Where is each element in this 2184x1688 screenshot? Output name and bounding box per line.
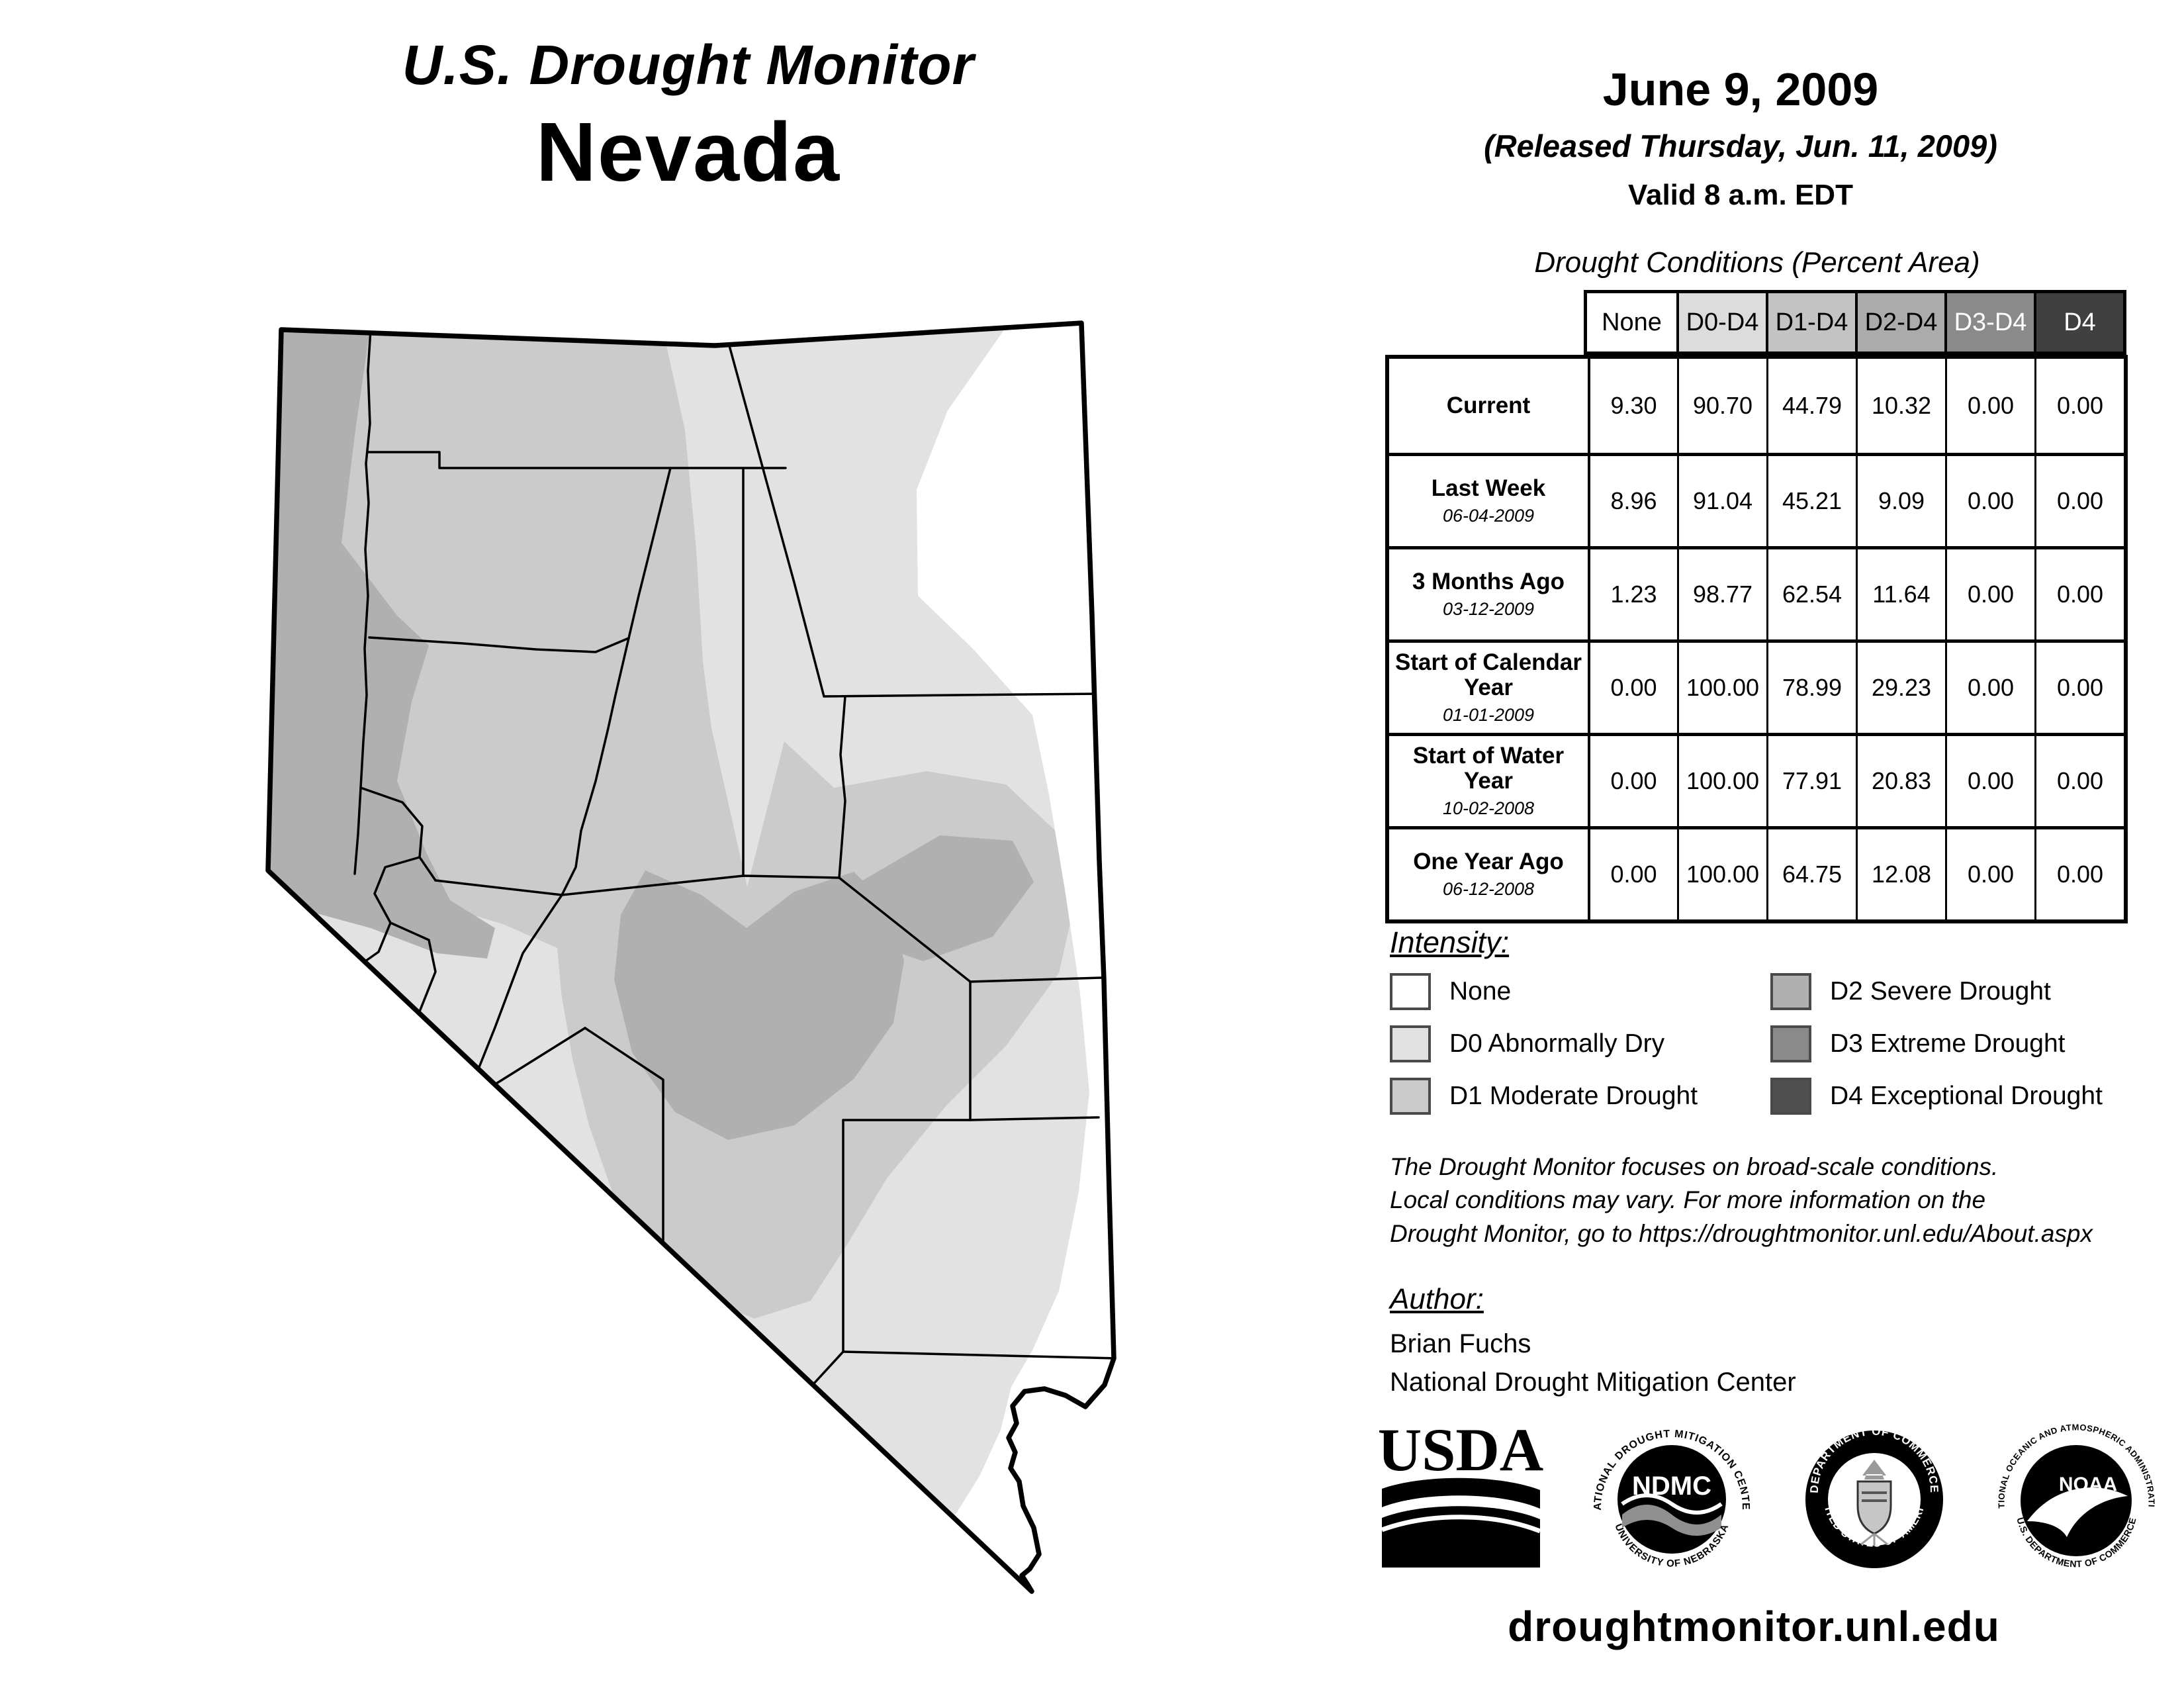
table-cell: 12.08 xyxy=(1856,829,1945,919)
row-label-start-calendar-year: Start of Calendar Year 01-01-2009 xyxy=(1389,643,1588,733)
legend-swatch-d0 xyxy=(1390,1025,1431,1062)
map-date: June 9, 2009 xyxy=(1310,63,2171,116)
table-cell: 91.04 xyxy=(1677,456,1766,546)
table-cell: 29.23 xyxy=(1856,643,1945,733)
author-organization: National Drought Mitigation Center xyxy=(1390,1368,1796,1397)
table-row: Current 9.30 90.70 44.79 10.32 0.00 0.00 xyxy=(1389,359,2124,453)
state-name: Nevada xyxy=(218,104,1158,200)
legend-item-d4: D4 Exceptional Drought xyxy=(1770,1076,2103,1116)
table-cell: 0.00 xyxy=(1588,643,1677,733)
table-cell: 44.79 xyxy=(1766,359,1856,453)
table-cell: 0.00 xyxy=(1945,359,2034,453)
legend-item-none: None xyxy=(1390,972,1770,1011)
table-cell: 100.00 xyxy=(1677,736,1766,826)
table-cell: 0.00 xyxy=(1588,829,1677,919)
table-row: Start of Calendar Year 01-01-2009 0.00 1… xyxy=(1389,639,2124,733)
table-cell: 0.00 xyxy=(2034,456,2124,546)
intensity-title: Intensity: xyxy=(1390,925,1509,960)
agency-logos: USDA NATIONAL DROUGHT MITIGATION CENTER … xyxy=(1377,1417,2158,1579)
usda-logo: USDA xyxy=(1377,1419,1545,1577)
legend-item-d0: D0 Abnormally Dry xyxy=(1390,1024,1770,1064)
table-cell: 62.54 xyxy=(1766,549,1856,639)
table-cell: 0.00 xyxy=(1945,456,2034,546)
legend-item-d2: D2 Severe Drought xyxy=(1770,972,2051,1011)
table-cell: 9.09 xyxy=(1856,456,1945,546)
row-label-start-water-year: Start of Water Year 10-02-2008 xyxy=(1389,736,1588,826)
table-cell: 0.00 xyxy=(1945,549,2034,639)
table-cell: 0.00 xyxy=(2034,829,2124,919)
table-row: Start of Water Year 10-02-2008 0.00 100.… xyxy=(1389,733,2124,826)
column-header-d1-d4: D1-D4 xyxy=(1766,293,1855,352)
author-title: Author: xyxy=(1390,1283,1484,1316)
nevada-drought-map xyxy=(232,281,1135,1615)
date-block: June 9, 2009 (Released Thursday, Jun. 11… xyxy=(1310,63,2171,212)
table-title: Drought Conditions (Percent Area) xyxy=(1357,246,2158,279)
column-header-d4: D4 xyxy=(2034,293,2123,352)
legend-swatch-none xyxy=(1390,973,1431,1010)
column-header-none: None xyxy=(1587,293,1676,352)
release-date: (Released Thursday, Jun. 11, 2009) xyxy=(1310,128,2171,164)
row-label-one-year-ago: One Year Ago 06-12-2008 xyxy=(1389,829,1588,919)
table-cell: 0.00 xyxy=(1945,736,2034,826)
disclaimer-text: The Drought Monitor focuses on broad-sca… xyxy=(1390,1150,2171,1250)
row-label-current: Current xyxy=(1389,359,1588,453)
doc-seal: DEPARTMENT OF COMMERCE UNITED STATES OF … xyxy=(1798,1419,1950,1577)
usda-logo-text: USDA xyxy=(1378,1419,1543,1483)
table-cell: 0.00 xyxy=(1945,643,2034,733)
legend-swatch-d4 xyxy=(1770,1078,1811,1115)
drought-monitor-url: droughtmonitor.unl.edu xyxy=(1324,1602,2184,1651)
table-row: 3 Months Ago 03-12-2009 1.23 98.77 62.54… xyxy=(1389,546,2124,639)
noaa-center-text: NOAA xyxy=(2059,1474,2117,1495)
table-cell: 64.75 xyxy=(1766,829,1856,919)
drought-conditions-table: None D0-D4 D1-D4 D2-D4 D3-D4 D4 Current … xyxy=(1385,290,2128,923)
valid-time: Valid 8 a.m. EDT xyxy=(1310,179,2171,212)
table-cell: 78.99 xyxy=(1766,643,1856,733)
table-cell: 8.96 xyxy=(1588,456,1677,546)
table-cell: 45.21 xyxy=(1766,456,1856,546)
legend-swatch-d2 xyxy=(1770,973,1811,1010)
legend-swatch-d1 xyxy=(1390,1078,1431,1115)
table-cell: 0.00 xyxy=(2034,643,2124,733)
table-body: Current 9.30 90.70 44.79 10.32 0.00 0.00… xyxy=(1385,355,2128,923)
table-cell: 1.23 xyxy=(1588,549,1677,639)
column-header-d3-d4: D3-D4 xyxy=(1944,293,2034,352)
column-header-d2-d4: D2-D4 xyxy=(1855,293,1944,352)
table-cell: 0.00 xyxy=(1945,829,2034,919)
table-row: Last Week 06-04-2009 8.96 91.04 45.21 9.… xyxy=(1389,453,2124,546)
table-row: One Year Ago 06-12-2008 0.00 100.00 64.7… xyxy=(1389,826,2124,919)
legend-swatch-d3 xyxy=(1770,1025,1811,1062)
ndmc-center-text: NDMC xyxy=(1632,1472,1711,1501)
row-label-last-week: Last Week 06-04-2009 xyxy=(1389,456,1588,546)
table-cell: 0.00 xyxy=(2034,359,2124,453)
table-cell: 100.00 xyxy=(1677,643,1766,733)
noaa-logo: NATIONAL OCEANIC AND ATMOSPHERIC ADMINIS… xyxy=(1995,1417,2158,1579)
page-title: U.S. Drought Monitor xyxy=(218,33,1158,97)
table-cell: 90.70 xyxy=(1677,359,1766,453)
table-cell: 0.00 xyxy=(1588,736,1677,826)
table-cell: 0.00 xyxy=(2034,736,2124,826)
ndmc-logo: NATIONAL DROUGHT MITIGATION CENTER NDMC … xyxy=(1590,1417,1752,1579)
table-cell: 100.00 xyxy=(1677,829,1766,919)
table-cell: 10.32 xyxy=(1856,359,1945,453)
table-cell: 98.77 xyxy=(1677,549,1766,639)
intensity-legend: None D2 Severe Drought D0 Abnormally Dry… xyxy=(1390,972,2158,1129)
legend-item-d1: D1 Moderate Drought xyxy=(1390,1076,1770,1116)
author-name: Brian Fuchs xyxy=(1390,1329,1531,1359)
table-header-row: None D0-D4 D1-D4 D2-D4 D3-D4 D4 xyxy=(1584,290,2126,355)
table-cell: 77.91 xyxy=(1766,736,1856,826)
row-label-3-months-ago: 3 Months Ago 03-12-2009 xyxy=(1389,549,1588,639)
title-block: U.S. Drought Monitor Nevada xyxy=(218,33,1158,200)
doc-shield-icon xyxy=(1858,1481,1891,1534)
table-cell: 9.30 xyxy=(1588,359,1677,453)
legend-item-d3: D3 Extreme Drought xyxy=(1770,1024,2065,1064)
column-header-d0-d4: D0-D4 xyxy=(1676,293,1766,352)
table-cell: 11.64 xyxy=(1856,549,1945,639)
table-cell: 0.00 xyxy=(2034,549,2124,639)
table-cell: 20.83 xyxy=(1856,736,1945,826)
